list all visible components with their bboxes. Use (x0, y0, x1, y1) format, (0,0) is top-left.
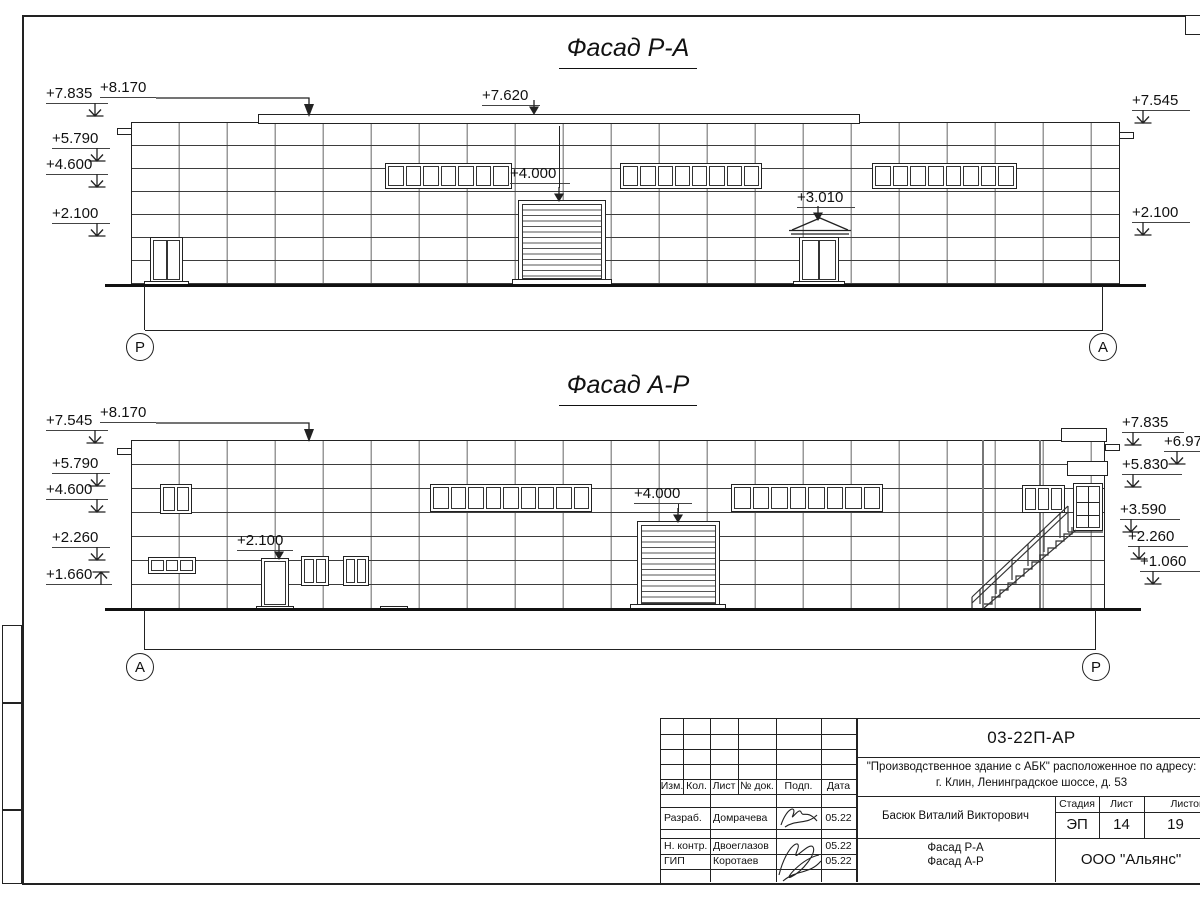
door-leaf (819, 240, 836, 280)
window-pane (771, 487, 788, 509)
window-pane (556, 487, 572, 509)
window-pane (423, 166, 439, 186)
axis-letter: Р (135, 339, 145, 356)
window-pane (503, 487, 519, 509)
elevation-arrow-up-icon (92, 568, 110, 585)
window-pane (692, 166, 707, 186)
axis-extension-line (144, 610, 145, 650)
axis-dimension-line (145, 649, 1096, 650)
gutter-right (1105, 444, 1120, 451)
ribbon-window (620, 163, 762, 189)
elevation-mark-4600: +4.600 (46, 482, 108, 500)
window-pane (406, 166, 422, 186)
col-header-izm: Изм. (661, 779, 683, 794)
axis-letter: А (1098, 339, 1108, 356)
frame-top-line (22, 15, 1200, 17)
elevation-arrow-down-icon (88, 499, 106, 516)
leader-arrow-icon (672, 508, 684, 523)
frame-edge-box (2, 625, 22, 703)
elevation-mark-5790: +5.790 (52, 456, 110, 474)
ribbon-window (430, 484, 592, 512)
sheet-number: 14 (1099, 812, 1144, 838)
window-pane (151, 560, 164, 571)
window-pane (753, 487, 770, 509)
elevation-mark-2100-mid: +2.100 (237, 533, 293, 551)
elevation-mark-1060-right: +1.060 (1140, 554, 1200, 572)
elevation-mark-4000: +4.000 (634, 486, 692, 504)
window (343, 556, 369, 586)
window-pane (709, 166, 724, 186)
window-pane (304, 559, 314, 583)
low-window (148, 557, 196, 574)
elevation-mark-5830-right: +5.830 (1122, 457, 1182, 475)
frame-left-line (22, 15, 24, 884)
stage-header: Стадия (1055, 796, 1099, 812)
window-pane (486, 487, 502, 509)
roller-gate (518, 200, 606, 281)
window-pane (166, 560, 179, 571)
ribbon-window (731, 484, 883, 512)
window-pane (574, 487, 590, 509)
elevation-arrow-down-icon (1124, 474, 1142, 491)
door-leaf (153, 240, 167, 280)
elevation-mark-2260-right: +2.260 (1128, 529, 1188, 547)
elevation-arrow-down-icon (1124, 432, 1142, 449)
gip-date: 05.22 (821, 854, 856, 869)
window-pane (316, 559, 326, 583)
leader-arrow-icon (553, 187, 565, 202)
pediment-entrance-door (799, 237, 839, 283)
entrance-door (261, 558, 289, 608)
elevation-arrow-down-icon (1134, 110, 1152, 127)
window-pane (808, 487, 825, 509)
document-number: 03-22П-АР (856, 719, 1200, 757)
leader-arrow-icon (156, 93, 318, 119)
window-pane (928, 166, 944, 186)
axis-letter: Р (1091, 659, 1101, 676)
roller-gate (637, 521, 720, 606)
axis-bubble-right: Р (1082, 653, 1110, 681)
ground-line (105, 284, 1146, 287)
frame-edge-box (2, 703, 22, 810)
elevation-mark-8170: +8.170 (100, 80, 156, 98)
gip-name: Коротаев (710, 854, 779, 869)
window-pane (893, 166, 909, 186)
stair-parapet (1061, 428, 1107, 442)
razrab-label: Разраб. (661, 807, 713, 829)
window-pane (623, 166, 638, 186)
axis-bubble-left: А (126, 653, 154, 681)
nkontr-date: 05.22 (821, 838, 856, 854)
axis-extension-line (1095, 610, 1096, 650)
ground-line (105, 608, 1141, 611)
door-canopy (1067, 461, 1108, 476)
leader-arrow-icon (812, 206, 824, 221)
project-name-line1: "Производственное здание с АБК" располож… (856, 759, 1200, 776)
window-pane (640, 166, 655, 186)
drawing-name-line2: Фасад А-Р (856, 856, 1055, 870)
frame-edge-box (2, 810, 22, 884)
elevation-mark-8170: +8.170 (100, 405, 156, 423)
door-leaf (802, 240, 819, 280)
facade-bottom-title: Фасад А-Р (528, 371, 728, 406)
gutter-left (117, 448, 132, 455)
window-pane (790, 487, 807, 509)
window-pane (727, 166, 742, 186)
window-pane (845, 487, 862, 509)
window-pane (521, 487, 537, 509)
elevation-mark-1660: +1.660 (46, 567, 112, 585)
signature-nkontr-gip (773, 831, 825, 885)
elevation-mark-5790: +5.790 (52, 131, 110, 149)
window-pane (458, 166, 474, 186)
elevation-mark-2100-left: +2.100 (52, 206, 110, 224)
elevation-mark-697-right: +6.97 (1164, 434, 1200, 452)
elevation-arrow-down-icon (88, 223, 106, 240)
window-pane (910, 166, 926, 186)
window-pane (441, 166, 457, 186)
window-pane (433, 487, 449, 509)
col-header-kol: Кол. (683, 779, 710, 794)
frame-corner-box (1185, 15, 1200, 35)
gutter-left (117, 128, 132, 135)
elevation-mark-4600: +4.600 (46, 157, 108, 175)
drawing-sheet: Фасад Р-А Р А +7.835 (0, 0, 1200, 900)
col-header-list: Лист (710, 779, 738, 794)
window-pane (875, 166, 891, 186)
title-block: Изм. Кол. Лист № док. Подп. Дата Разраб.… (660, 718, 1200, 884)
entrance-door (150, 237, 183, 283)
leader-arrow-icon (273, 545, 285, 560)
gutter-right (1119, 132, 1134, 139)
sheets-header: Листов (1144, 796, 1200, 812)
elevation-arrow-down-icon (88, 174, 106, 191)
sheets-total: 19 (1144, 812, 1200, 838)
window-pane (864, 487, 881, 509)
elevation-arrow-down-icon (88, 547, 106, 564)
elevation-arrow-down-icon (86, 103, 104, 120)
ribbon-window (872, 163, 1017, 189)
window-pane (538, 487, 554, 509)
project-name-line2: г. Клин, Ленинградское шоссе, д. 53 (856, 775, 1200, 792)
company-name: ООО "Альянс" (1055, 838, 1200, 882)
elevation-mark-7835-right: +7.835 (1122, 415, 1184, 433)
window-pane (981, 166, 997, 186)
window-pane (476, 166, 492, 186)
window-pane (946, 166, 962, 186)
axis-extension-line (1102, 286, 1103, 330)
facade-top-drawing (131, 114, 1120, 285)
window-pane (998, 166, 1014, 186)
gip-label: ГИП (661, 854, 713, 869)
elevation-mark-4000: +4.000 (510, 166, 570, 184)
parapet-band (258, 114, 860, 124)
elevation-mark-7835: +7.835 (46, 86, 108, 104)
elevation-arrow-down-icon (1134, 222, 1152, 239)
elevation-mark-2260-left: +2.260 (52, 530, 110, 548)
facade-bottom-drawing (131, 428, 1107, 612)
signature-razrab (777, 803, 821, 831)
window-pane (658, 166, 673, 186)
window-pane (675, 166, 690, 186)
axis-dimension-line (145, 330, 1103, 331)
window-pane (357, 559, 366, 583)
elevation-mark-3590-right: +3.590 (1120, 502, 1180, 520)
razrab-date: 05.22 (821, 807, 856, 829)
window (160, 484, 192, 514)
ribbon-window (385, 163, 512, 189)
leader-line (559, 126, 560, 188)
window-pane (451, 487, 467, 509)
col-header-data: Дата (821, 779, 856, 794)
window-pane (163, 487, 175, 511)
door-leaf (264, 561, 286, 605)
window-pane (180, 560, 193, 571)
elevation-mark-3010: +3.010 (797, 190, 855, 208)
facade-top-title: Фасад Р-А (528, 34, 728, 69)
external-staircase (960, 490, 1110, 615)
elevation-arrow-down-icon (1144, 571, 1162, 588)
door-leaf (167, 240, 181, 280)
window-pane (827, 487, 844, 509)
window-pane (493, 166, 509, 186)
window-pane (177, 487, 189, 511)
elevation-mark-7620: +7.620 (482, 88, 540, 106)
window (301, 556, 329, 586)
elevation-mark-2100-right: +2.100 (1132, 205, 1190, 223)
window-pane (388, 166, 404, 186)
window-pane (734, 487, 751, 509)
col-header-ndok: № док. (738, 779, 776, 794)
nkontr-label: Н. контр. (661, 838, 713, 854)
elevation-mark-7545: +7.545 (46, 413, 108, 431)
window-pane (963, 166, 979, 186)
window-pane (744, 166, 759, 186)
col-header-podp: Подп. (776, 779, 821, 794)
stage-value: ЭП (1055, 812, 1099, 838)
elevation-arrow-down-icon (86, 430, 104, 447)
window-pane (468, 487, 484, 509)
axis-extension-line (144, 286, 145, 330)
elevation-mark-7545-right: +7.545 (1132, 93, 1190, 111)
nkontr-name: Двоеглазов (710, 838, 779, 854)
leader-arrow-icon (528, 100, 540, 115)
author-name: Басюк Виталий Викторович (856, 796, 1055, 838)
leader-arrow-icon (156, 418, 318, 444)
axis-bubble-right: А (1089, 333, 1117, 361)
axis-letter: А (135, 659, 145, 676)
facade-wall-panels (131, 122, 1120, 285)
drawing-name-line1: Фасад Р-А (856, 842, 1055, 856)
axis-bubble-left: Р (126, 333, 154, 361)
window-pane (346, 559, 355, 583)
razrab-name: Домрачева (710, 807, 779, 829)
sheet-header: Лист (1099, 796, 1144, 812)
